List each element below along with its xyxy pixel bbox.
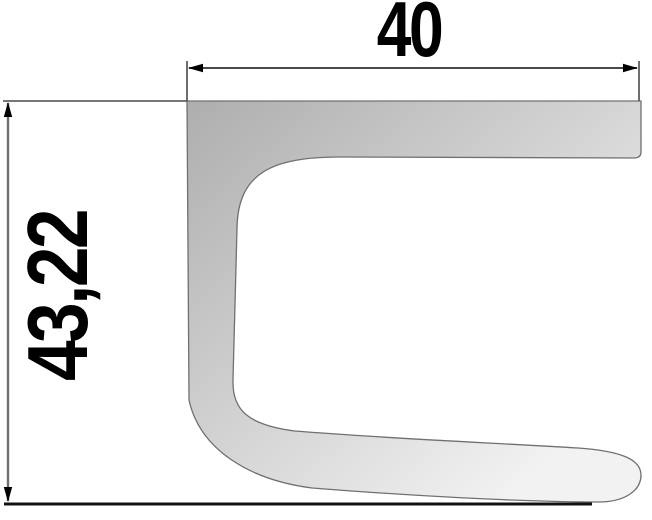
height-dimension-label: 43,22 (14, 183, 104, 408)
profile-shape (187, 101, 641, 502)
arrowhead-right-icon (623, 64, 638, 72)
arrowhead-down-icon (4, 487, 12, 502)
arrowhead-up-icon (4, 102, 12, 117)
technical-drawing: 40 43,22 (0, 0, 652, 520)
profile (187, 101, 641, 502)
arrowhead-left-icon (188, 64, 203, 72)
width-dimension-label: 40 (353, 0, 465, 68)
